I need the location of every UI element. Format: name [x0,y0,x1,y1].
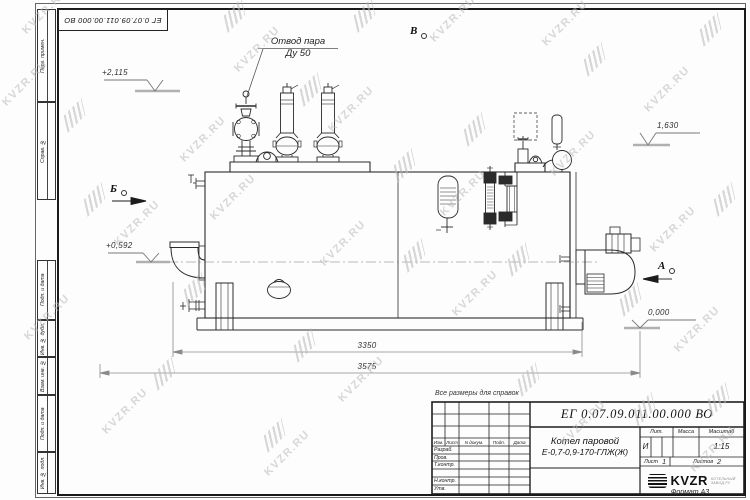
margin-stamp-inv-podl: Инв. № подл. [37,452,56,494]
dim-3350: 3350 [337,341,397,350]
format-note: Формат А3 [660,489,720,496]
margin-stamp-vzam-inv: Взам. инв. № [37,357,56,395]
col-sign: Подп. [489,440,509,445]
elevation-0000: 0,000 [648,308,670,317]
sheets-value: 2 [717,459,721,466]
margin-stamp-podp-data-1: Подп. и дата [37,260,56,320]
elevation-1630: 1,630 [657,121,679,130]
label-mass: Масса [673,429,699,435]
margin-stamp-perv-primen: Перв. примен. [37,9,56,102]
row-utv: Утв. [434,486,460,492]
row-tkontr: Т.контр. [434,462,460,468]
row-prov: Пров. [434,455,460,461]
view-marker-v: В [410,25,417,37]
margin-stamp-sprav-no: Справ. № [37,102,56,200]
view-marker-b: Б [110,183,117,195]
title-doc-number: ЕГ 0.07.09.011.00.000 ВО [532,404,742,425]
label-lit: Лит. [640,429,673,435]
sheet-cell: Лист 1 [640,458,670,466]
row-nkontr: Н.контр. [434,478,460,484]
elevation-0592: +0,592 [106,241,133,250]
margin-stamp-podp-data-2: Подп. и дата [37,395,56,452]
view-marker-a: А [658,260,665,272]
brand-name: KVZR [670,473,707,488]
sheets-label: Листов [693,459,713,465]
product-designation: Е-0,7-0,9-170-ГЛЖ(Ж) [531,447,639,457]
reference-note: Все размеры для справок [435,390,519,397]
view-ref-circle-a [669,268,675,274]
drawing-sheet: { "watermark": { "text": "KVZR.RU" }, "f… [0,0,750,500]
top-doc-number: ЕГ 0.07.09.011.00.000 ВО [64,16,162,25]
col-list: Лист [445,440,459,445]
row-razrab: Разраб. [434,447,460,453]
col-doc: N докум. [459,440,489,445]
top-doc-number-stamp: ЕГ 0.07.09.011.00.000 ВО [58,9,168,31]
value-lit: И [640,442,651,451]
margin-stamp-inv-dubl: Инв. № дубл. [37,320,56,357]
sheets-cell: Листов 2 [670,458,744,466]
view-ref-circle-v [421,33,427,39]
brand-subtitle: КОТЕЛЬНЫЙ ЗАВОД.РУ [711,477,736,485]
dim-3575: 3575 [337,362,397,371]
value-scale: 1:15 [699,442,744,451]
sheet-label: Лист [644,459,658,465]
callout-du50: Ду 50 [258,48,338,59]
col-izm: Изм. [432,440,445,445]
col-date: Дата [509,440,530,445]
callout-steam-outlet: Отвод пара [258,36,338,47]
sheet-value: 1 [662,459,666,466]
product-name: Котел паровой [531,436,639,447]
elevation-2115: +2,115 [102,68,128,77]
view-ref-circle-b [121,190,127,196]
kvzr-logo-icon [648,474,667,488]
label-scale: Масштаб [699,429,744,435]
